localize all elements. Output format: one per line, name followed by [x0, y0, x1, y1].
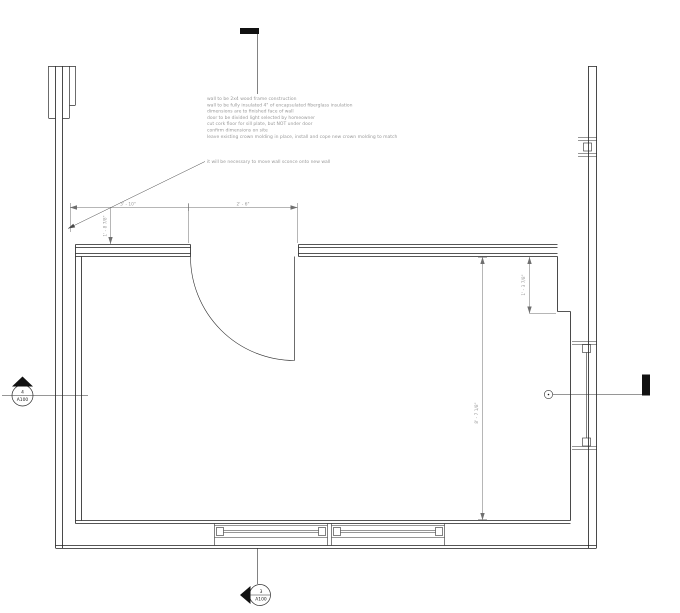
section-arrow-left-icon	[240, 586, 251, 604]
sconce-leader-arrow-icon	[68, 224, 75, 229]
note-line: confirm dimensions on site	[207, 128, 268, 134]
note-line: leave existing crown molding in place, i…	[207, 134, 398, 140]
dimension-right-long: 8' - 7 1/8"	[474, 257, 487, 520]
drawing-canvas: 3 A100 4 A100 3' - 10" 2' - 6" 1' - 8 7/…	[0, 0, 680, 613]
section-detail-number: 3	[260, 589, 263, 595]
section-marker-left: 4 A100	[12, 377, 33, 407]
note-line: door to be divided light selected by hom…	[207, 115, 315, 121]
dim-label-left-vertical: 1' - 8 7/8"	[103, 215, 109, 236]
door-swing	[191, 257, 295, 361]
dimension-left-vertical: 1' - 8 7/8"	[103, 208, 113, 245]
right-wall-window	[572, 342, 597, 450]
section-detail-number: 4	[21, 390, 24, 396]
dim-label-right-upper: 1' - 3 7/8"	[521, 274, 527, 295]
dim-label-right-long: 8' - 7 1/8"	[474, 402, 480, 423]
section-sheet-number: A100	[255, 597, 267, 603]
sconce-note-text: it will be necessary to move wall sconce…	[207, 159, 330, 165]
section-marker-bottom: 3 A100	[240, 585, 271, 606]
note-line: wall to be 2x4 wood frame construction	[207, 96, 297, 102]
sconce-leader-line	[68, 162, 205, 229]
dim-label-top-right: 2' - 6"	[237, 202, 250, 208]
note-line: wall to be fully insulated 4" of encapsu…	[207, 102, 353, 108]
bottom-window-right	[332, 524, 445, 546]
right-wall-small-window	[578, 138, 597, 157]
dim-label-top-left: 3' - 10"	[120, 202, 136, 208]
bottom-window-left	[215, 524, 328, 546]
section-tail-right	[642, 375, 650, 396]
room-walls	[76, 245, 571, 524]
note-line: dimensions are to finished face of wall	[207, 109, 294, 115]
dimension-right-upper: 1' - 3 7/8"	[521, 257, 556, 314]
section-tail-top	[240, 28, 259, 34]
note-line: cut cork floor for sill plate, but NOT u…	[207, 121, 313, 127]
section-arrow-up-icon	[12, 377, 33, 387]
general-notes: wall to be 2x4 wood frame construction w…	[207, 96, 398, 140]
floor-plan: 3 A100 4 A100 3' - 10" 2' - 6" 1' - 8 7/…	[0, 0, 680, 613]
section-line-horizontal	[2, 375, 650, 399]
section-sheet-number: A100	[17, 397, 29, 403]
